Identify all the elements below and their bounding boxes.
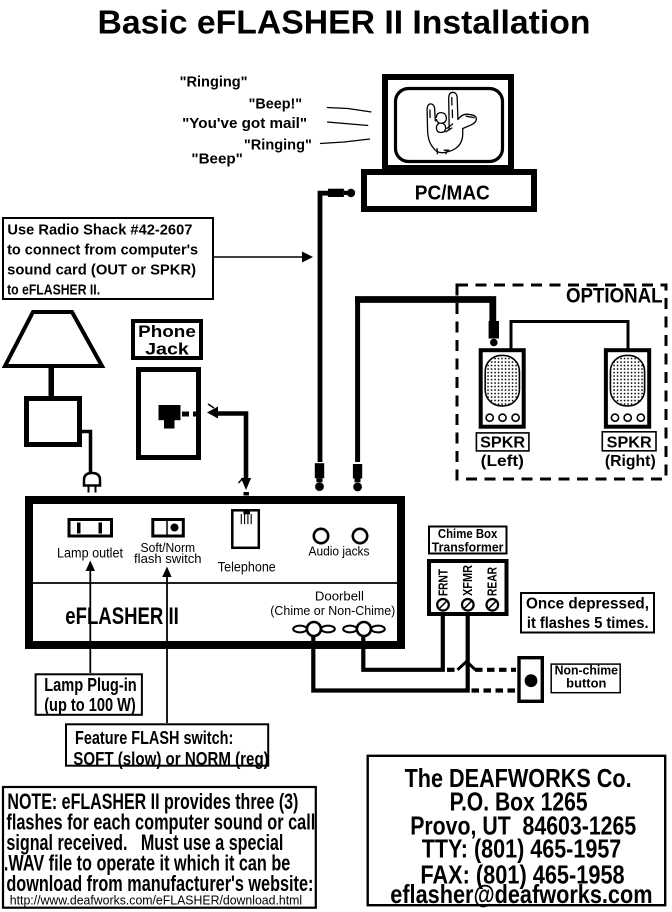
svg-text:to eFLASHER II.: to eFLASHER II.	[7, 281, 100, 298]
svg-text:FRNT: FRNT	[436, 569, 450, 596]
svg-text:XFMR: XFMR	[461, 565, 475, 596]
svg-text:Lamp Plug-in: Lamp Plug-in	[44, 675, 137, 695]
svg-text:Feature FLASH switch:: Feature FLASH switch:	[75, 728, 233, 748]
svg-text:"Ringing": "Ringing"	[180, 74, 248, 90]
svg-text:PC/MAC: PC/MAC	[415, 183, 490, 205]
svg-text:SPKR: SPKR	[480, 435, 525, 452]
svg-text:to connect from computer's: to connect from computer's	[7, 241, 198, 258]
svg-text:Once depressed,: Once depressed,	[526, 596, 649, 613]
svg-text:Jack: Jack	[145, 341, 190, 359]
svg-text:"Ringing": "Ringing"	[244, 138, 312, 154]
svg-text:"You've got mail": "You've got mail"	[182, 116, 307, 132]
svg-text:sound card (OUT or SPKR): sound card (OUT or SPKR)	[7, 261, 196, 278]
svg-text:Use Radio Shack #42-2607: Use Radio Shack #42-2607	[7, 222, 192, 239]
svg-text:it flashes 5 times.: it flashes 5 times.	[527, 615, 649, 632]
svg-text:(Chime or Non-Chime): (Chime or Non-Chime)	[270, 603, 395, 618]
svg-text:SPKR: SPKR	[607, 435, 652, 452]
svg-text:eflasher@deafworks.com: eflasher@deafworks.com	[390, 879, 652, 909]
svg-text:Basic eFLASHER II Installation: Basic eFLASHER II Installation	[98, 4, 591, 41]
svg-text:SOFT (slow) or NORM (reg): SOFT (slow) or NORM (reg)	[73, 749, 268, 769]
svg-text:Lamp outlet: Lamp outlet	[57, 546, 123, 561]
svg-text:Telephone: Telephone	[218, 560, 276, 575]
svg-text:Audio jacks: Audio jacks	[309, 545, 370, 559]
svg-text:Doorbell: Doorbell	[315, 589, 364, 604]
svg-text:REAR: REAR	[486, 567, 500, 596]
svg-text:(Left): (Left)	[481, 453, 524, 470]
svg-text:Transformer: Transformer	[432, 540, 504, 555]
svg-text:flash switch: flash switch	[134, 552, 202, 566]
svg-text:"Beep": "Beep"	[191, 152, 243, 168]
svg-text:Phone: Phone	[138, 323, 196, 341]
svg-text:button: button	[566, 677, 606, 691]
svg-text:eFLASHER II: eFLASHER II	[65, 603, 179, 630]
svg-text:(Right): (Right)	[605, 453, 656, 470]
svg-text:"Beep!": "Beep!"	[249, 97, 303, 113]
svg-text:(up to 100 W): (up to 100 W)	[44, 695, 136, 715]
svg-text:http://www.deafworks.com/eFLAS: http://www.deafworks.com/eFLASHER/downlo…	[10, 893, 302, 908]
svg-text:OPTIONAL: OPTIONAL	[566, 285, 663, 308]
